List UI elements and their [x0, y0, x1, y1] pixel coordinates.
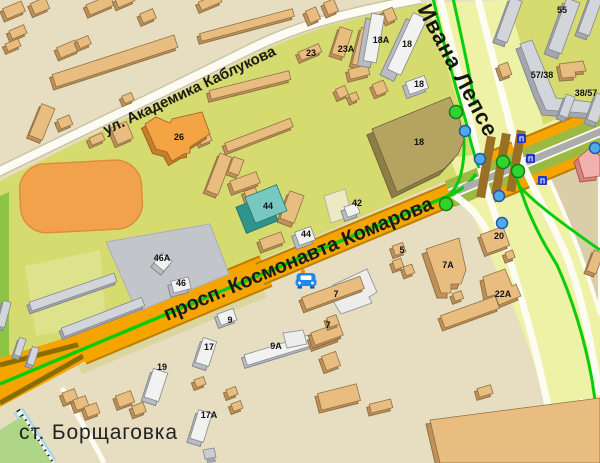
- svg-text:9: 9: [227, 315, 232, 325]
- svg-text:42: 42: [352, 198, 362, 208]
- svg-text:44: 44: [263, 201, 273, 211]
- svg-text:38/57: 38/57: [575, 88, 598, 98]
- svg-text:7: 7: [333, 289, 338, 299]
- svg-text:П: П: [519, 137, 524, 144]
- svg-text:57/38: 57/38: [531, 70, 554, 80]
- svg-text:9A: 9A: [270, 341, 282, 351]
- svg-text:18: 18: [414, 79, 424, 89]
- svg-text:22A: 22A: [495, 289, 512, 299]
- svg-text:46A: 46A: [154, 253, 171, 263]
- svg-text:19: 19: [157, 362, 167, 372]
- svg-text:17: 17: [204, 342, 214, 352]
- svg-text:П: П: [540, 179, 545, 186]
- svg-text:18: 18: [414, 137, 424, 147]
- svg-text:5: 5: [399, 245, 404, 255]
- svg-text:18: 18: [402, 39, 412, 49]
- svg-text:55: 55: [557, 5, 567, 15]
- svg-text:23A: 23A: [338, 44, 355, 54]
- svg-text:17A: 17A: [201, 410, 218, 420]
- svg-text:26: 26: [174, 132, 184, 142]
- svg-text:7A: 7A: [442, 260, 454, 270]
- svg-text:20: 20: [494, 231, 504, 241]
- svg-text:23: 23: [306, 48, 316, 58]
- svg-text:П: П: [528, 157, 533, 164]
- svg-text:ст. Борщаговка: ст. Борщаговка: [19, 421, 177, 444]
- svg-text:46: 46: [176, 278, 186, 288]
- svg-text:44: 44: [301, 229, 311, 239]
- svg-text:18A: 18A: [373, 35, 390, 45]
- svg-text:7: 7: [325, 320, 330, 330]
